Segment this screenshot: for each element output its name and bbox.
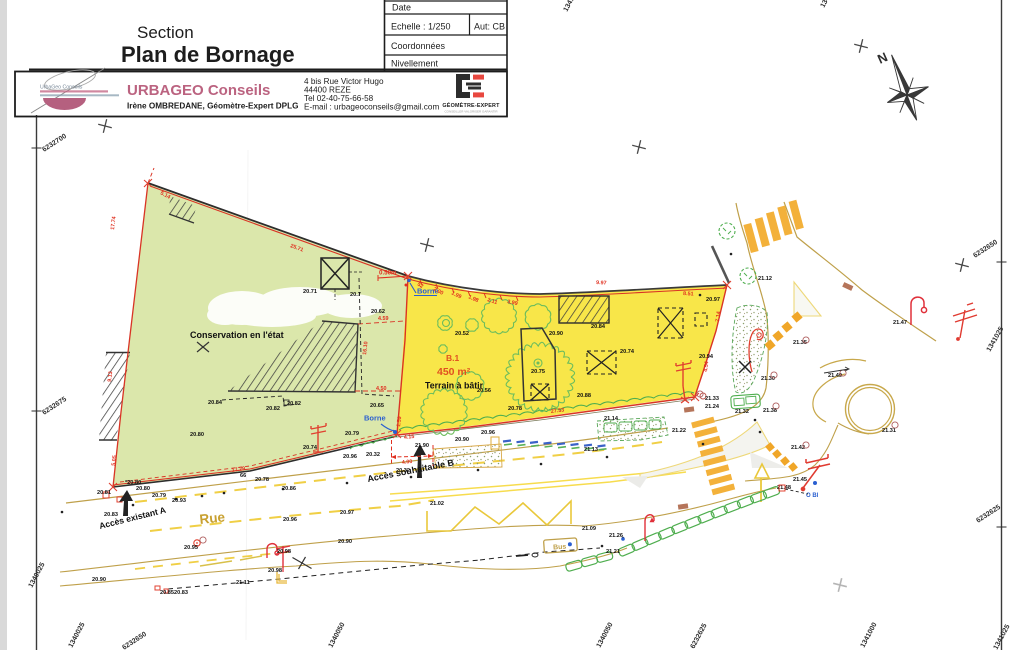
svg-text:20.56: 20.56 [477,388,491,394]
svg-text:20.83: 20.83 [104,512,118,518]
svg-text:Echelle : 1/250: Echelle : 1/250 [391,22,451,32]
svg-text:20.94: 20.94 [699,354,714,360]
svg-text:20.80: 20.80 [190,432,204,438]
svg-text:20.88: 20.88 [577,393,591,399]
svg-text:450 m²: 450 m² [437,366,471,378]
svg-text:Bus: Bus [553,544,567,552]
svg-text:21.09: 21.09 [582,526,596,532]
svg-text:Conservation en l'état: Conservation en l'état [190,330,284,340]
svg-text:4.59: 4.59 [378,316,389,322]
svg-text:20.96: 20.96 [481,430,495,436]
svg-text:1341000: 1341000 [860,621,879,648]
svg-text:1340025: 1340025 [68,621,87,648]
svg-text:6232625: 6232625 [975,504,1002,525]
svg-text:0.50m: 0.50m [379,270,397,277]
svg-text:20.79: 20.79 [345,431,359,437]
svg-text:20.86: 20.86 [282,486,296,492]
svg-text:Section: Section [137,23,194,42]
svg-text:*20.80: *20.80 [125,480,141,486]
svg-text:17.74: 17.74 [110,216,118,230]
svg-text:20.90: 20.90 [455,437,469,443]
svg-text:N: N [875,49,890,67]
svg-text:Terrain à bâtir: Terrain à bâtir [425,381,484,391]
svg-text:20.98: 20.98 [277,549,291,555]
svg-text:20.82: 20.82 [266,406,280,412]
svg-text:6232650: 6232650 [121,631,148,650]
svg-text:Aut: CB: Aut: CB [474,22,505,32]
svg-text:GÉOMÈTRE-EXPERT: GÉOMÈTRE-EXPERT [442,101,500,109]
svg-text:6232625: 6232625 [690,622,709,649]
svg-text:21.13: 21.13 [584,447,598,453]
svg-text:20.78: 20.78 [255,477,269,483]
svg-text:20.81: 20.81 [97,490,111,496]
svg-text:21.90: 21.90 [415,443,429,449]
svg-text:8.51: 8.51 [683,291,694,298]
svg-text:7.14: 7.14 [715,311,722,322]
svg-text:20.8520.83: 20.8520.83 [160,590,188,596]
svg-text:20.96: 20.96 [283,517,297,523]
svg-text:21.32: 21.32 [735,409,749,415]
svg-text:20.74: 20.74 [620,349,635,355]
svg-text:20.78: 20.78 [508,406,522,412]
svg-text:20.65: 20.65 [370,403,384,409]
svg-text:UrbaGeo Conseils: UrbaGeo Conseils [40,85,83,91]
svg-text:1341025: 1341025 [986,326,1006,353]
svg-text:21.12: 21.12 [758,276,772,282]
svg-text:20.80: 20.80 [136,486,150,492]
svg-text:21.14: 21.14 [604,416,619,422]
svg-text:21.31: 21.31 [882,428,896,434]
svg-text:Rue: Rue [199,509,226,527]
svg-text:20.84: 20.84 [208,400,223,406]
svg-text:20.74: 20.74 [303,445,318,451]
svg-text:20.97: 20.97 [706,297,720,303]
svg-text:20.84: 20.84 [591,324,606,330]
svg-text:20.71: 20.71 [303,289,317,295]
svg-text:20.90: 20.90 [549,331,563,337]
svg-text:Nivellement: Nivellement [391,59,439,69]
svg-text:21.22: 21.22 [672,428,686,434]
svg-text:4.54: 4.54 [703,361,710,372]
svg-text:Plan de Bornage: Plan de Bornage [121,42,295,67]
svg-text:5.05: 5.05 [111,455,118,466]
svg-text:1341000: 1341000 [563,0,582,13]
svg-text:Borne: Borne [364,414,386,423]
svg-text:6232675: 6232675 [41,396,68,417]
svg-text:20.95: 20.95 [184,545,198,551]
svg-text:21.47: 21.47 [893,320,907,326]
svg-text:20.97: 20.97 [340,510,354,516]
svg-text:21.24: 21.24 [705,404,720,410]
svg-text:21.33: 21.33 [705,396,719,402]
svg-text:URBAGEO Conseils: URBAGEO Conseils [127,82,270,99]
svg-text:B.1: B.1 [446,353,460,363]
svg-text:21.30: 21.30 [761,376,775,382]
svg-text:Date: Date [392,3,411,13]
svg-text:4.00: 4.00 [402,459,413,466]
svg-text:20.82: 20.82 [287,401,301,407]
svg-text:21.26: 21.26 [609,533,623,539]
svg-text:21.02: 21.02 [430,501,444,507]
svg-text:1.59: 1.59 [396,416,403,427]
svg-text:9.97: 9.97 [596,280,607,287]
svg-text:1340050: 1340050 [328,621,347,648]
svg-text:66: 66 [240,473,246,479]
svg-text:6232650: 6232650 [972,239,999,260]
svg-text:20.52: 20.52 [455,331,469,337]
svg-text:21.45: 21.45 [793,477,807,483]
svg-text:6232700: 6232700 [41,133,68,154]
svg-text:20.32: 20.32 [396,468,410,474]
svg-text:9.13: 9.13 [107,371,114,382]
svg-text:4.50: 4.50 [376,386,387,392]
svg-text:Coordonnées: Coordonnées [391,41,446,51]
svg-text:20.32: 20.32 [366,452,380,458]
svg-text:4.15: 4.15 [404,434,415,441]
svg-text:20.90: 20.90 [92,577,106,583]
svg-text:20.79: 20.79 [152,493,166,499]
svg-text:20.62: 20.62 [371,309,385,315]
svg-text:Irène OMBREDANE, Géomètre-Expe: Irène OMBREDANE, Géomètre-Expert DPLG [127,102,299,111]
svg-text:20.75: 20.75 [531,369,545,375]
svg-text:21.11: 21.11 [236,580,250,586]
svg-text:21.21: 21.21 [606,549,620,555]
svg-text:1340050: 1340050 [596,621,615,648]
svg-text:20.96: 20.96 [343,454,357,460]
svg-text:20.93: 20.93 [172,498,186,504]
svg-text:E-mail : urbageoconseils@gmail: E-mail : urbageoconseils@gmail.com [304,103,439,112]
svg-text:CONSEILLER VALORISER GARANTIR: CONSEILLER VALORISER GARANTIR [444,110,498,114]
svg-text:1341025: 1341025 [820,0,839,9]
svg-text:20.98: 20.98 [268,568,282,574]
svg-text:20.90: 20.90 [338,539,352,545]
svg-text:20.7: 20.7 [350,292,361,298]
